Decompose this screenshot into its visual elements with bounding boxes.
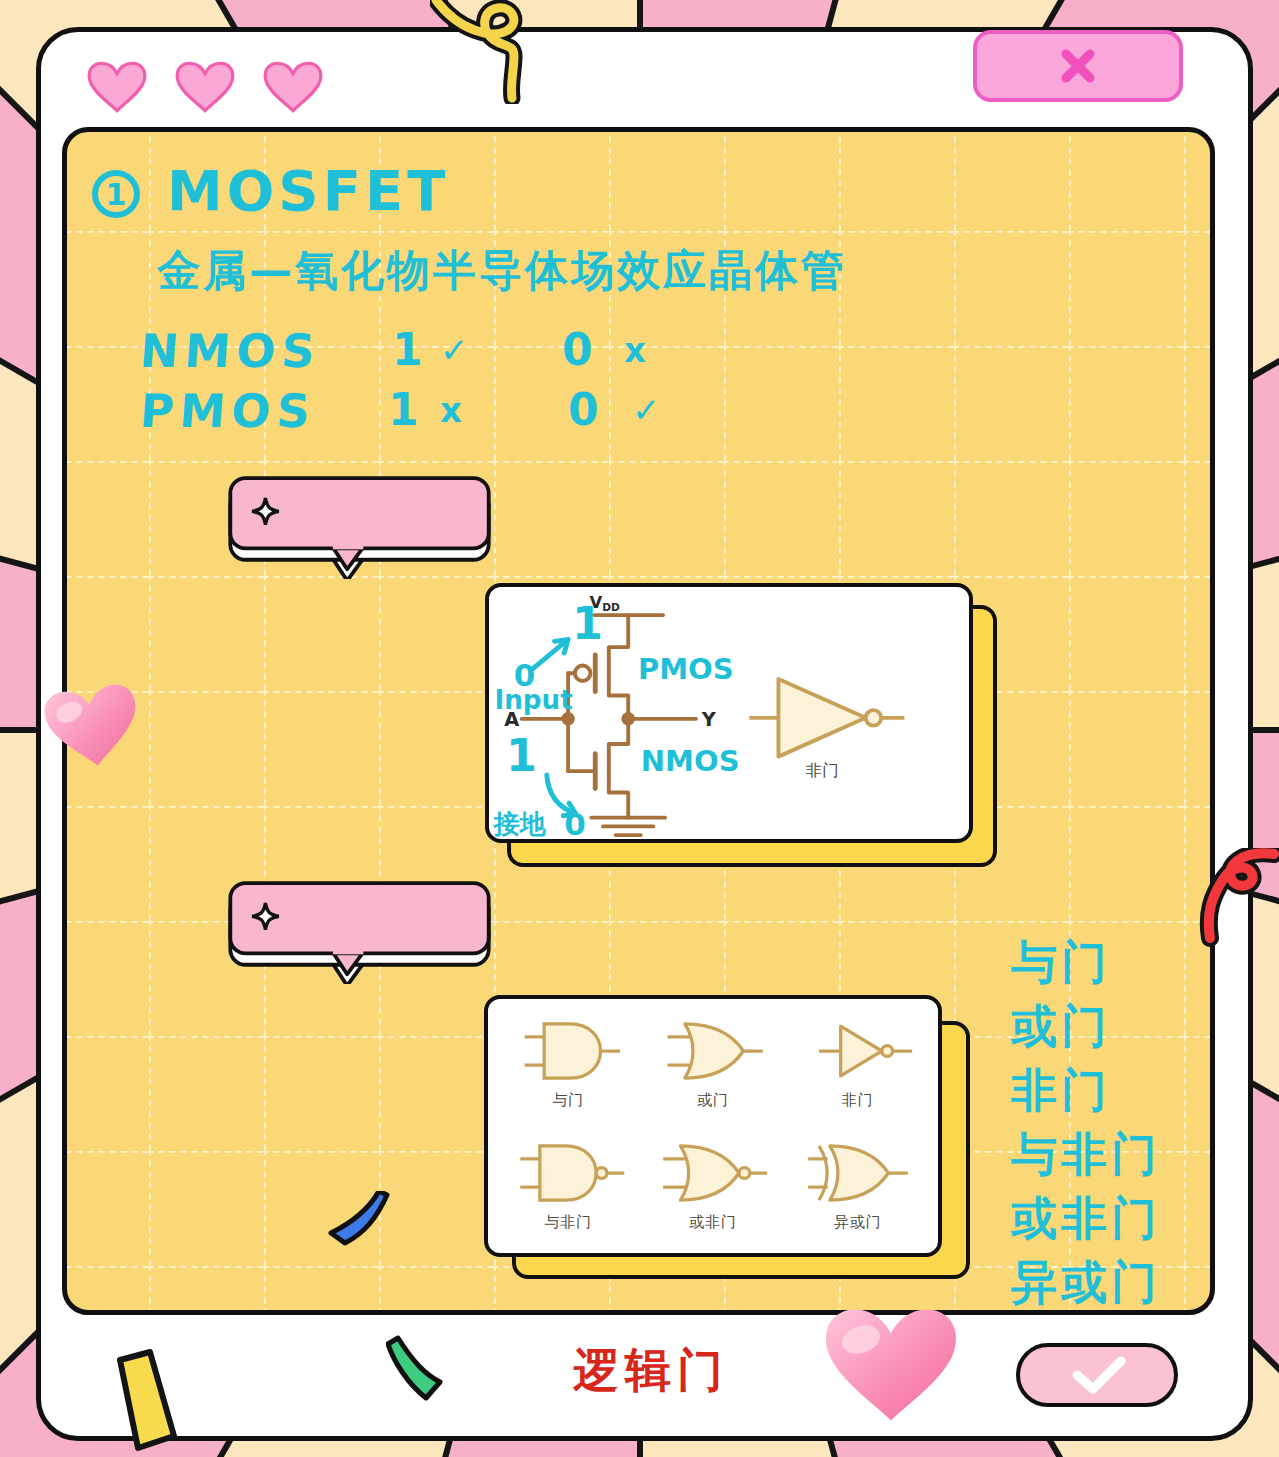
close-icon <box>1055 43 1101 89</box>
list-item: 或非门 <box>1011 1186 1161 1250</box>
inverter-wires <box>522 615 696 835</box>
list-item: 或门 <box>1011 994 1161 1058</box>
note-pad: 1 MOSFET 金属—氧化物半导体场效应晶体管 NMOS 1 ✓ 0 x PM… <box>62 127 1215 1315</box>
ground-label: 接地 <box>492 809 546 839</box>
row-label: NMOS <box>138 324 322 378</box>
page-subtitle: 金属—氧化物半导体场效应晶体管 <box>157 242 847 300</box>
row-mark: x <box>440 390 462 430</box>
gate-label: 与非门 <box>544 1213 592 1232</box>
or-gate-icon <box>648 1013 778 1089</box>
gate-and: 与门 <box>496 1013 641 1125</box>
gate-nor: 或非门 <box>641 1135 786 1247</box>
close-button[interactable] <box>973 30 1183 102</box>
page-title: MOSFET <box>167 158 449 223</box>
cmos-inverter-diagram: VDD A Y 1 0 Input 1 0 接地 PMOS NMOS <box>489 587 969 839</box>
gate-or: 或门 <box>641 1013 786 1125</box>
output-node-dot <box>621 712 635 726</box>
heart-icon <box>173 58 237 116</box>
row-label: PMOS <box>138 384 318 438</box>
speech-bubble-1 <box>217 474 502 579</box>
hearts-row <box>85 58 325 116</box>
list-item: 与非门 <box>1011 1122 1161 1186</box>
blue-swoosh-decoration <box>323 1191 393 1253</box>
annotation-one-input: 1 <box>506 730 537 782</box>
node-y-label: Y <box>701 708 717 731</box>
heart-icon <box>85 58 149 116</box>
gates-card: 与门 或门 <box>484 995 942 1257</box>
gate-label: 异或门 <box>834 1213 882 1232</box>
truth-table: NMOS 1 ✓ 0 x PMOS 1 x 0 ✓ <box>140 324 760 454</box>
section-number: 1 <box>106 177 127 212</box>
row-mark: ✓ <box>440 330 469 370</box>
truth-row-nmos: NMOS 1 ✓ 0 x <box>140 324 760 382</box>
speech-bubble-2 <box>217 879 502 984</box>
row-mark: x <box>624 330 646 370</box>
row-value: 0 <box>568 384 599 435</box>
nor-gate-icon <box>648 1135 778 1211</box>
gate-not: 非门 <box>785 1013 930 1125</box>
circled-one-icon: 1 <box>92 170 140 218</box>
row-value: 0 <box>562 324 593 375</box>
ground-symbol <box>591 818 665 835</box>
xor-gate-icon <box>793 1135 923 1211</box>
nmos-label: NMOS <box>641 744 740 778</box>
inverter-card: VDD A Y 1 0 Input 1 0 接地 PMOS NMOS <box>485 583 973 843</box>
pmos-label: PMOS <box>638 652 734 686</box>
gate-xor: 异或门 <box>785 1135 930 1247</box>
nand-gate-icon <box>503 1135 633 1211</box>
not-gate-symbol: 非门 <box>749 679 904 780</box>
row-value: 1 <box>392 324 423 375</box>
pink-heart-sticker <box>32 659 153 794</box>
gate-label: 或门 <box>697 1091 729 1110</box>
red-squiggle-decoration <box>1194 848 1279 948</box>
check-icon <box>1055 1353 1139 1397</box>
gate-name-list: 与门 或门 非门 与非门 或非门 异或门 <box>1011 930 1161 1314</box>
input-label: Input <box>494 685 572 715</box>
list-item: 非门 <box>1011 1058 1161 1122</box>
gates-grid: 与门 或门 <box>488 999 938 1253</box>
list-item: 与门 <box>1011 930 1161 994</box>
truth-row-pmos: PMOS 1 x 0 ✓ <box>140 384 760 442</box>
gate-nand: 与非门 <box>496 1135 641 1247</box>
pink-heart-sticker <box>816 1286 966 1444</box>
heart-icon <box>261 58 325 116</box>
confirm-button[interactable] <box>1016 1343 1178 1407</box>
green-decoration <box>386 1334 444 1402</box>
gate-label: 或非门 <box>689 1213 737 1232</box>
note-card: 1 MOSFET 金属—氧化物半导体场效应晶体管 NMOS 1 ✓ 0 x PM… <box>36 27 1253 1441</box>
and-gate-icon <box>503 1013 633 1089</box>
gate-label: 非门 <box>842 1091 874 1110</box>
annotation-one-top: 1 <box>572 598 603 650</box>
yellow-trapezoid-decoration <box>94 1348 184 1453</box>
row-mark: ✓ <box>632 390 661 430</box>
arrow-down-right <box>547 775 576 816</box>
page: 1 MOSFET 金属—氧化物半导体场效应晶体管 NMOS 1 ✓ 0 x PM… <box>0 0 1279 1457</box>
pmos-gate-bubble <box>575 666 591 682</box>
list-item: 异或门 <box>1011 1250 1161 1314</box>
not-gate-icon <box>793 1013 923 1089</box>
arrow-up-right <box>533 639 568 668</box>
gate-label: 与门 <box>552 1091 584 1110</box>
not-gate-label: 非门 <box>806 761 839 780</box>
row-value: 1 <box>388 384 419 435</box>
footer-caption: 逻辑门 <box>573 1340 729 1402</box>
yellow-squiggle-decoration <box>430 0 542 104</box>
